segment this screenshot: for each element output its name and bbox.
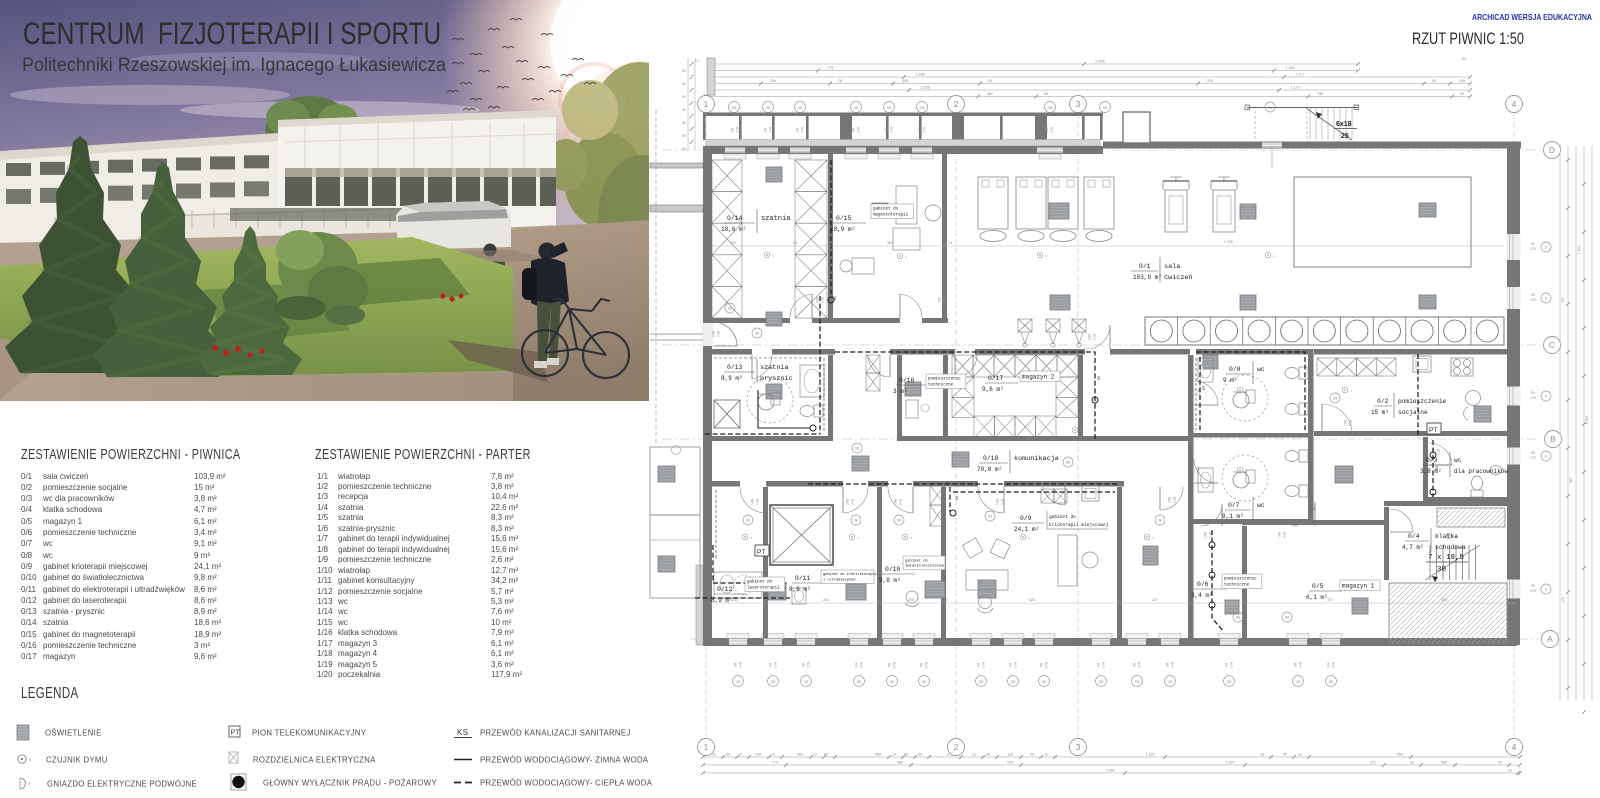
svg-text:15 m²: 15 m² xyxy=(1371,409,1389,416)
svg-text:170: 170 xyxy=(1300,662,1304,668)
svg-text:O5: O5 xyxy=(1042,680,1047,684)
svg-text:170: 170 xyxy=(894,662,898,668)
svg-text:gabinet do: gabinet do xyxy=(905,558,929,563)
svg-text:O5: O5 xyxy=(732,106,737,110)
svg-text:PT: PT xyxy=(757,549,765,556)
svg-text:komunikacja: komunikacja xyxy=(1014,455,1059,463)
svg-text:210: 210 xyxy=(1438,449,1442,455)
svg-text:O5: O5 xyxy=(1168,680,1173,684)
svg-text:O5: O5 xyxy=(920,106,925,110)
svg-text:4: 4 xyxy=(750,536,752,540)
svg-text:O4: O4 xyxy=(1268,106,1273,110)
svg-text:90: 90 xyxy=(732,128,736,132)
svg-text:210: 210 xyxy=(1350,420,1354,426)
svg-text:0/17: 0/17 xyxy=(988,375,1004,382)
svg-text:0/14: 0/14 xyxy=(727,215,743,222)
svg-text:90: 90 xyxy=(1010,663,1014,667)
svg-text:8,9 m²: 8,9 m² xyxy=(721,375,743,382)
svg-text:170: 170 xyxy=(1530,298,1536,302)
svg-text:0/2: 0/2 xyxy=(1377,398,1389,405)
svg-text:170: 170 xyxy=(1046,662,1050,668)
svg-text:170: 170 xyxy=(802,127,806,133)
svg-text:O5: O5 xyxy=(979,680,984,684)
svg-text:170: 170 xyxy=(737,127,741,133)
svg-text:wc: wc xyxy=(1257,366,1265,373)
svg-text:1 738: 1 738 xyxy=(1223,240,1233,244)
svg-text:gabinet do: gabinet do xyxy=(747,580,773,585)
svg-text:O5: O5 xyxy=(736,680,741,684)
svg-text:8: 8 xyxy=(1545,297,1547,301)
svg-text:3: 3 xyxy=(1076,742,1081,752)
svg-text:100: 100 xyxy=(847,499,851,505)
svg-text:756: 756 xyxy=(1317,92,1323,96)
svg-text:wc: wc xyxy=(1257,502,1265,509)
svg-text:33: 33 xyxy=(1462,57,1466,61)
svg-text:50: 50 xyxy=(682,82,686,86)
svg-text:100: 100 xyxy=(1169,497,1173,503)
svg-text:28: 28 xyxy=(1260,753,1264,757)
svg-text:9,1 m²: 9,1 m² xyxy=(1222,513,1244,520)
svg-text:KS: KS xyxy=(834,296,838,300)
svg-text:50: 50 xyxy=(1460,92,1464,96)
svg-text:1 104: 1 104 xyxy=(1577,246,1581,255)
svg-text:0/10: 0/10 xyxy=(885,566,901,573)
svg-text:90: 90 xyxy=(797,128,801,132)
svg-text:pomieszczenie: pomieszczenie xyxy=(1224,577,1257,582)
svg-text:460: 460 xyxy=(875,753,881,757)
svg-text:1 984: 1 984 xyxy=(1585,416,1589,425)
svg-text:0/12: 0/12 xyxy=(717,586,733,593)
svg-text:7 x 18,5: 7 x 18,5 xyxy=(1428,554,1465,562)
svg-text:0/7: 0/7 xyxy=(1228,502,1240,509)
svg-text:90: 90 xyxy=(1226,663,1230,667)
svg-text:prysznic: prysznic xyxy=(760,375,793,383)
svg-text:O5: O5 xyxy=(1329,680,1334,684)
svg-text:100: 100 xyxy=(1205,532,1209,538)
svg-text:1: 1 xyxy=(704,99,709,109)
svg-text:magazyn 1: magazyn 1 xyxy=(1342,583,1375,590)
svg-text:3,4 m²: 3,4 m² xyxy=(1191,592,1213,599)
svg-text:30: 30 xyxy=(1437,566,1447,574)
svg-text:4: 4 xyxy=(857,536,859,540)
svg-text:12: 12 xyxy=(972,753,976,757)
svg-text:170: 170 xyxy=(770,127,774,133)
svg-text:170: 170 xyxy=(1530,396,1536,400)
svg-text:170: 170 xyxy=(1530,589,1536,593)
svg-text:0/6: 0/6 xyxy=(1197,581,1209,588)
svg-text:90: 90 xyxy=(1167,663,1171,667)
svg-text:14: 14 xyxy=(1118,598,1122,602)
svg-text:D8: D8 xyxy=(988,515,992,519)
svg-text:0/9: 0/9 xyxy=(1020,515,1032,522)
svg-text:0/15: 0/15 xyxy=(836,215,852,222)
svg-text:170: 170 xyxy=(1172,662,1176,668)
svg-text:170: 170 xyxy=(1139,662,1143,668)
svg-text:14: 14 xyxy=(892,753,896,757)
svg-text:325: 325 xyxy=(730,241,736,245)
svg-text:90: 90 xyxy=(918,753,922,757)
svg-text:A: A xyxy=(1547,634,1553,644)
svg-text:100: 100 xyxy=(1279,532,1283,538)
svg-text:1 361: 1 361 xyxy=(1285,66,1295,70)
svg-text:90: 90 xyxy=(1041,663,1045,667)
svg-text:170: 170 xyxy=(926,662,930,668)
svg-text:KS: KS xyxy=(1098,376,1102,380)
svg-text:szatnia: szatnia xyxy=(761,215,790,223)
svg-text:O5: O5 xyxy=(1011,680,1016,684)
svg-text:0/1: 0/1 xyxy=(1139,263,1151,270)
svg-text:118: 118 xyxy=(1007,753,1013,757)
svg-text:12: 12 xyxy=(1044,753,1048,757)
svg-text:50: 50 xyxy=(682,69,686,73)
svg-text:230: 230 xyxy=(755,753,761,757)
svg-text:103,9 m²: 103,9 m² xyxy=(1133,274,1162,281)
svg-text:99: 99 xyxy=(712,753,716,757)
svg-text:210: 210 xyxy=(1198,467,1202,473)
svg-text:laseroterapii: laseroterapii xyxy=(747,586,780,591)
svg-text:magazyn 2: magazyn 2 xyxy=(1022,374,1055,381)
svg-text:354: 354 xyxy=(770,79,776,83)
svg-text:6,1 m²: 6,1 m² xyxy=(1306,594,1328,601)
svg-text:4: 4 xyxy=(1028,536,1030,540)
svg-text:2 084: 2 084 xyxy=(1106,769,1115,773)
svg-text:170: 170 xyxy=(1530,247,1536,251)
svg-text:90: 90 xyxy=(1295,663,1299,667)
svg-text:90: 90 xyxy=(1134,663,1138,667)
svg-text:50: 50 xyxy=(1498,761,1502,765)
svg-text:D8: D8 xyxy=(1236,616,1240,620)
svg-text:90: 90 xyxy=(1531,451,1535,455)
svg-text:1 177: 1 177 xyxy=(1295,73,1305,77)
svg-text:krioterapii miejscowej: krioterapii miejscowej xyxy=(1049,522,1108,528)
svg-text:100: 100 xyxy=(939,297,943,303)
svg-text:O5: O5 xyxy=(766,106,771,110)
svg-text:szatnia: szatnia xyxy=(760,364,789,372)
svg-text:365: 365 xyxy=(1441,761,1447,765)
svg-text:170: 170 xyxy=(775,662,779,668)
svg-text:86: 86 xyxy=(904,753,908,757)
svg-text:100: 100 xyxy=(713,331,717,337)
svg-text:90: 90 xyxy=(978,663,982,667)
svg-text:wc: wc xyxy=(1454,457,1462,464)
svg-text:O6: O6 xyxy=(1048,106,1053,110)
svg-text:schodowa: schodowa xyxy=(1435,544,1466,551)
svg-text:120: 120 xyxy=(1046,127,1050,133)
svg-text:9,8 m²: 9,8 m² xyxy=(879,577,901,584)
svg-text:17: 17 xyxy=(695,59,699,63)
svg-text:ARCHICAD WERSJA EDUKACYJNA: ARCHICAD WERSJA EDUKACYJNA xyxy=(1472,13,1592,22)
svg-text:gabinet do: gabinet do xyxy=(1049,514,1076,520)
svg-text:światłolecznictwa: światłolecznictwa xyxy=(905,564,944,569)
svg-text:D: D xyxy=(1549,145,1555,155)
svg-text:90: 90 xyxy=(824,753,828,757)
svg-text:83: 83 xyxy=(1044,92,1048,96)
svg-text:RZUT PIWNIC 1:50: RZUT PIWNIC 1:50 xyxy=(1412,30,1524,48)
svg-text:4,7 m²: 4,7 m² xyxy=(1402,544,1424,551)
svg-text:PT: PT xyxy=(1429,427,1437,434)
svg-text:587: 587 xyxy=(1569,477,1573,483)
svg-text:9 m²: 9 m² xyxy=(1223,377,1237,384)
svg-text:14: 14 xyxy=(877,598,881,602)
svg-text:524: 524 xyxy=(1029,598,1035,602)
svg-text:1 338: 1 338 xyxy=(920,86,930,90)
svg-text:4: 4 xyxy=(1273,254,1275,258)
svg-text:C: C xyxy=(1549,340,1555,350)
svg-text:KS: KS xyxy=(956,496,960,500)
svg-text:210: 210 xyxy=(944,297,948,303)
svg-text:gabinet do: gabinet do xyxy=(873,207,899,212)
svg-text:26: 26 xyxy=(988,79,992,83)
svg-text:4: 4 xyxy=(772,254,774,258)
svg-text:O5: O5 xyxy=(857,680,862,684)
svg-text:1: 1 xyxy=(704,742,709,752)
svg-text:100: 100 xyxy=(1345,420,1349,426)
svg-text:1 127: 1 127 xyxy=(1290,86,1300,90)
svg-text:210: 210 xyxy=(757,499,761,505)
svg-text:3,8 m²: 3,8 m² xyxy=(1420,468,1442,475)
svg-text:779: 779 xyxy=(827,66,833,70)
svg-text:techniczne: techniczne xyxy=(928,383,954,388)
svg-text:552: 552 xyxy=(1397,753,1403,757)
svg-text:D8: D8 xyxy=(1285,616,1289,620)
svg-text:230: 230 xyxy=(732,598,738,602)
svg-text:O5: O5 xyxy=(922,680,927,684)
svg-text:sala: sala xyxy=(1164,263,1180,271)
svg-text:170: 170 xyxy=(924,127,928,133)
svg-text:205: 205 xyxy=(1007,761,1013,765)
svg-text:210: 210 xyxy=(1094,334,1098,340)
svg-text:90: 90 xyxy=(803,663,807,667)
svg-text:100: 100 xyxy=(997,499,1001,505)
svg-text:70,8 m²: 70,8 m² xyxy=(977,466,1002,473)
svg-text:O5: O5 xyxy=(1227,680,1232,684)
svg-text:170: 170 xyxy=(891,127,895,133)
svg-text:90: 90 xyxy=(765,128,769,132)
svg-text:338: 338 xyxy=(902,79,908,83)
svg-text:8,6 m²: 8,6 m² xyxy=(789,586,811,593)
svg-text:170: 170 xyxy=(983,662,987,668)
svg-text:O5: O5 xyxy=(1135,680,1140,684)
svg-text:12: 12 xyxy=(813,753,817,757)
svg-text:0/13: 0/13 xyxy=(727,364,743,371)
svg-text:90: 90 xyxy=(921,663,925,667)
svg-text:ćwiczeń: ćwiczeń xyxy=(1164,274,1193,282)
svg-text:8: 8 xyxy=(1545,455,1547,459)
svg-text:i ultradźwięków: i ultradźwięków xyxy=(823,577,856,582)
svg-text:26: 26 xyxy=(838,79,842,83)
svg-text:90: 90 xyxy=(1531,584,1535,588)
svg-text:14: 14 xyxy=(943,598,947,602)
svg-text:0/3: 0/3 xyxy=(1426,457,1438,464)
svg-text:210: 210 xyxy=(1002,499,1006,505)
svg-text:50: 50 xyxy=(682,108,686,112)
svg-text:50: 50 xyxy=(682,95,686,99)
svg-text:D8: D8 xyxy=(755,332,759,336)
svg-text:90: 90 xyxy=(735,663,739,667)
svg-text:O5: O5 xyxy=(771,680,776,684)
svg-text:O5: O5 xyxy=(887,106,892,110)
svg-text:3: 3 xyxy=(1076,99,1081,109)
svg-text:170: 170 xyxy=(808,662,812,668)
svg-text:4: 4 xyxy=(1045,254,1047,258)
svg-text:12: 12 xyxy=(1298,753,1302,757)
svg-text:90: 90 xyxy=(986,753,990,757)
svg-text:100: 100 xyxy=(752,499,756,505)
svg-text:90: 90 xyxy=(1030,753,1034,757)
svg-text:170: 170 xyxy=(1103,662,1107,668)
svg-text:779: 779 xyxy=(772,761,778,765)
svg-text:2: 2 xyxy=(954,99,959,109)
svg-text:90: 90 xyxy=(770,663,774,667)
svg-text:170: 170 xyxy=(740,662,744,668)
svg-text:D8: D8 xyxy=(1158,519,1162,523)
svg-text:24,1 m²: 24,1 m² xyxy=(1014,526,1039,533)
svg-text:210: 210 xyxy=(852,499,856,505)
svg-text:376: 376 xyxy=(1207,79,1213,83)
svg-text:1 338: 1 338 xyxy=(915,73,925,77)
svg-text:4: 4 xyxy=(910,536,912,540)
svg-text:magnetoterapii: magnetoterapii xyxy=(873,213,909,218)
svg-text:KS: KS xyxy=(1203,386,1207,390)
svg-text:O5: O5 xyxy=(804,680,809,684)
svg-text:74: 74 xyxy=(948,241,952,245)
svg-text:D8: D8 xyxy=(897,519,901,523)
svg-text:90: 90 xyxy=(1098,663,1102,667)
svg-text:8: 8 xyxy=(1545,246,1547,250)
svg-text:90: 90 xyxy=(1283,753,1287,757)
svg-text:0/5: 0/5 xyxy=(1312,583,1324,590)
svg-text:4: 4 xyxy=(905,255,907,259)
svg-text:165: 165 xyxy=(1459,79,1465,83)
svg-text:90: 90 xyxy=(726,753,730,757)
svg-text:90: 90 xyxy=(1531,242,1535,246)
svg-text:25: 25 xyxy=(1341,133,1349,140)
svg-text:380: 380 xyxy=(897,761,903,765)
svg-text:0/16: 0/16 xyxy=(899,377,915,384)
svg-text:O5: O5 xyxy=(1296,680,1301,684)
svg-text:170: 170 xyxy=(861,662,865,668)
svg-text:8: 8 xyxy=(1545,588,1547,592)
svg-text:371: 371 xyxy=(1370,761,1376,765)
svg-text:D8: D8 xyxy=(854,519,858,523)
svg-text:50: 50 xyxy=(682,147,686,151)
svg-text:gabinet do elektroterapii: gabinet do elektroterapii xyxy=(823,572,877,577)
svg-text:90: 90 xyxy=(853,128,857,132)
svg-text:361: 361 xyxy=(887,241,893,245)
svg-text:365: 365 xyxy=(1441,598,1447,602)
svg-text:33: 33 xyxy=(1508,769,1512,773)
svg-text:dla pracowników: dla pracowników xyxy=(1454,468,1508,475)
svg-text:50: 50 xyxy=(682,134,686,138)
svg-text:90: 90 xyxy=(886,128,890,132)
svg-text:9,6 m²: 9,6 m² xyxy=(982,386,1004,393)
svg-text:210: 210 xyxy=(1284,532,1288,538)
svg-text:170: 170 xyxy=(1015,662,1019,668)
svg-text:3 m²: 3 m² xyxy=(893,388,907,395)
svg-text:100: 100 xyxy=(1193,467,1197,473)
svg-text:0/11: 0/11 xyxy=(795,575,811,582)
svg-text:90: 90 xyxy=(1531,391,1535,395)
svg-text:210: 210 xyxy=(900,499,904,505)
svg-text:90: 90 xyxy=(919,128,923,132)
svg-text:90: 90 xyxy=(1328,663,1332,667)
svg-text:socjalne: socjalne xyxy=(1398,409,1428,416)
svg-text:26: 26 xyxy=(1432,79,1436,83)
svg-text:14: 14 xyxy=(771,753,775,757)
svg-text:O6: O6 xyxy=(1103,106,1108,110)
svg-text:12: 12 xyxy=(738,753,742,757)
svg-text:170: 170 xyxy=(1333,662,1337,668)
svg-text:4: 4 xyxy=(1512,742,1517,752)
svg-text:208: 208 xyxy=(908,598,914,602)
svg-text:284: 284 xyxy=(823,598,829,602)
svg-text:0/18: 0/18 xyxy=(983,455,999,462)
svg-text:264: 264 xyxy=(797,753,803,757)
svg-text:2 566: 2 566 xyxy=(1095,60,1105,64)
svg-text:170: 170 xyxy=(1530,456,1536,460)
svg-text:D8: D8 xyxy=(855,447,859,451)
svg-text:210: 210 xyxy=(718,331,722,337)
svg-text:371: 371 xyxy=(1327,598,1333,602)
svg-text:1 357: 1 357 xyxy=(1226,761,1235,765)
svg-text:210: 210 xyxy=(822,297,826,303)
svg-text:90: 90 xyxy=(1531,293,1535,297)
svg-text:O5: O5 xyxy=(854,106,859,110)
svg-text:210: 210 xyxy=(1174,497,1178,503)
svg-text:pomieszczenie: pomieszczenie xyxy=(928,377,961,382)
svg-text:362: 362 xyxy=(987,92,993,96)
svg-text:170: 170 xyxy=(1231,662,1235,668)
svg-text:D8: D8 xyxy=(728,307,732,311)
svg-text:4: 4 xyxy=(1245,469,1247,473)
svg-text:klatka: klatka xyxy=(1435,533,1458,540)
svg-text:14: 14 xyxy=(764,598,768,602)
svg-text:292: 292 xyxy=(1561,297,1565,303)
svg-text:8: 8 xyxy=(1545,395,1547,399)
svg-text:O5: O5 xyxy=(1099,680,1104,684)
svg-text:207: 207 xyxy=(1152,598,1158,602)
svg-text:2: 2 xyxy=(954,742,959,752)
svg-text:100: 100 xyxy=(1089,334,1093,340)
svg-text:0/4: 0/4 xyxy=(1408,533,1420,540)
svg-text:O5: O5 xyxy=(890,680,895,684)
svg-text:28: 28 xyxy=(1410,761,1414,765)
svg-text:90: 90 xyxy=(889,663,893,667)
svg-text:4: 4 xyxy=(1350,389,1352,393)
svg-text:18,6 m²: 18,6 m² xyxy=(721,226,746,233)
svg-text:pomieszczenie: pomieszczenie xyxy=(1398,398,1447,405)
svg-text:O5: O5 xyxy=(798,106,803,110)
svg-text:18,9 m²: 18,9 m² xyxy=(830,226,855,233)
svg-text:B: B xyxy=(1550,434,1556,444)
svg-text:50: 50 xyxy=(682,121,686,125)
svg-text:100: 100 xyxy=(895,499,899,505)
svg-text:421: 421 xyxy=(1561,597,1565,603)
svg-text:4: 4 xyxy=(1512,99,1517,109)
svg-text:90: 90 xyxy=(856,663,860,667)
svg-text:170: 170 xyxy=(1051,127,1055,133)
svg-text:14: 14 xyxy=(793,241,797,245)
svg-text:D8: D8 xyxy=(1333,397,1337,401)
svg-text:4: 4 xyxy=(1152,536,1154,540)
svg-text:techniczne: techniczne xyxy=(1224,583,1250,588)
svg-text:4: 4 xyxy=(1245,389,1247,393)
svg-text:D8: D8 xyxy=(746,519,750,523)
svg-text:6x18: 6x18 xyxy=(1336,121,1352,128)
svg-text:1 116: 1 116 xyxy=(1146,753,1155,757)
svg-text:D8: D8 xyxy=(1066,461,1070,465)
svg-text:170: 170 xyxy=(858,127,862,133)
